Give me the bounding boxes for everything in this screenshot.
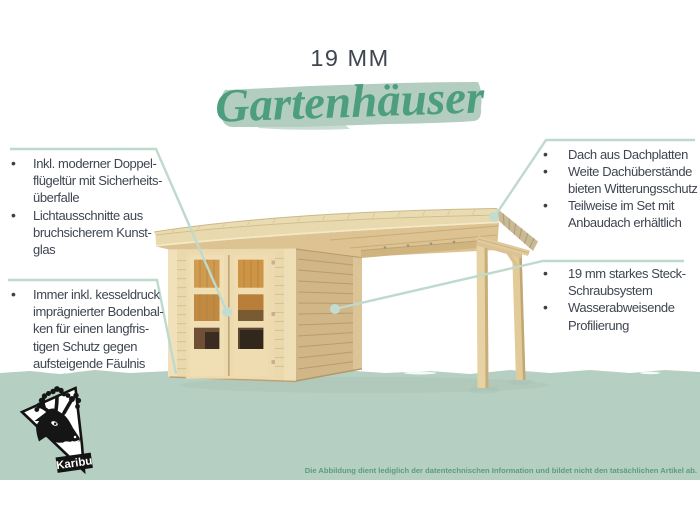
svg-text:Die Abbildung dient lediglich: Die Abbildung dient lediglich der datent… — [305, 466, 697, 475]
svg-text:Gartenhäuser: Gartenhäuser — [214, 71, 485, 132]
